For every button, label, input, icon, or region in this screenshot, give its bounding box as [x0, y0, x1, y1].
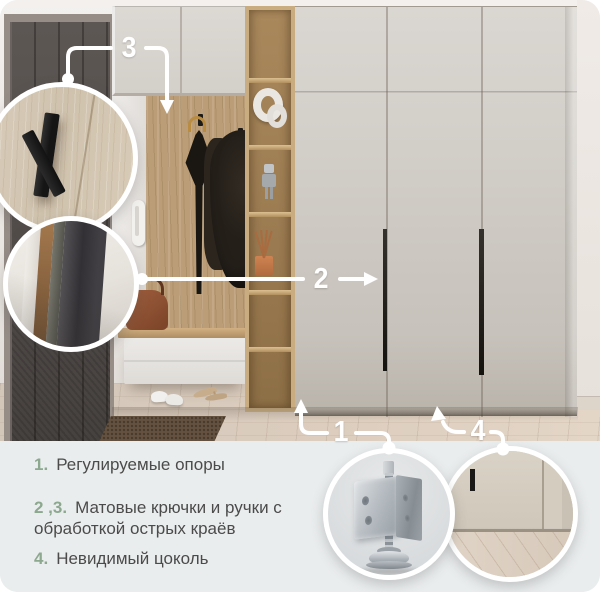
- callout-label-supports: 1: [332, 417, 350, 447]
- plinth-closeup-circle: [442, 446, 578, 582]
- bracket-hole: [405, 514, 410, 522]
- foot-bracket-side: [396, 475, 422, 541]
- callout-label-plinth: 4: [468, 416, 488, 446]
- figurine-body: [262, 174, 276, 187]
- feature-text: Регулируемые опоры: [56, 455, 225, 474]
- aroma-diffuser: [255, 256, 273, 276]
- open-shelf-column: [245, 6, 295, 412]
- foot-bracket-front: [354, 476, 398, 539]
- plinth-floor: [447, 532, 573, 577]
- wardrobe-handle: [479, 229, 484, 375]
- plinth-handle-notch: [470, 469, 475, 491]
- feature-item-supports: 1.Регулируемые опоры: [34, 441, 356, 475]
- handle-profile-closeup-circle: [3, 216, 139, 352]
- profile-shade: [8, 221, 134, 347]
- plinth-door-edge: [544, 451, 562, 530]
- right-wall: [577, 0, 600, 405]
- bracket-hole: [403, 494, 408, 502]
- feature-number: 2 ,3.: [34, 498, 67, 517]
- figurine-head: [264, 164, 274, 173]
- plinth-corner: [562, 451, 573, 529]
- foot-shadow: [358, 568, 420, 575]
- decor-figurine: [261, 164, 277, 200]
- shelf: [249, 290, 291, 295]
- callout-label-hooks: 3: [119, 33, 139, 63]
- umbrella-handle: [188, 116, 206, 132]
- wardrobe: [295, 6, 577, 416]
- wardrobe-top-divider: [295, 91, 577, 94]
- feature-number: 1.: [34, 455, 48, 474]
- wood-seam: [70, 82, 97, 234]
- cabinet-divider: [180, 7, 182, 93]
- feature-item-plinth: 4.Невидимый цоколь: [34, 548, 356, 569]
- wardrobe-side-panel: [565, 7, 577, 417]
- callout-label-handles: 2: [311, 264, 331, 294]
- shelf: [249, 78, 291, 83]
- product-card: 1.Регулируемые опоры 2 ,3.Матовые крючки…: [0, 0, 600, 592]
- shelf: [249, 145, 291, 150]
- decor-vase: [267, 104, 287, 128]
- feature-item-hooks-handles: 2 ,3.Матовые крючки и ручки с обработкой…: [34, 497, 356, 539]
- wardrobe-handle: [383, 229, 387, 371]
- support-foot-closeup-circle: [323, 448, 455, 580]
- bracket-hole: [365, 515, 372, 525]
- bracket-hole: [362, 496, 369, 506]
- baseboard: [577, 396, 600, 410]
- foot-base: [366, 561, 412, 569]
- feature-text: Невидимый цоколь: [56, 549, 208, 568]
- feature-number: 4.: [34, 549, 48, 568]
- doormat: [98, 416, 226, 443]
- figurine-legs: [265, 187, 273, 199]
- bench-drawer: [124, 338, 246, 384]
- sneakers: [166, 394, 184, 406]
- feature-text: Матовые крючки и ручки с обработкой остр…: [34, 498, 282, 538]
- shelf: [249, 212, 291, 217]
- shelf: [249, 347, 291, 352]
